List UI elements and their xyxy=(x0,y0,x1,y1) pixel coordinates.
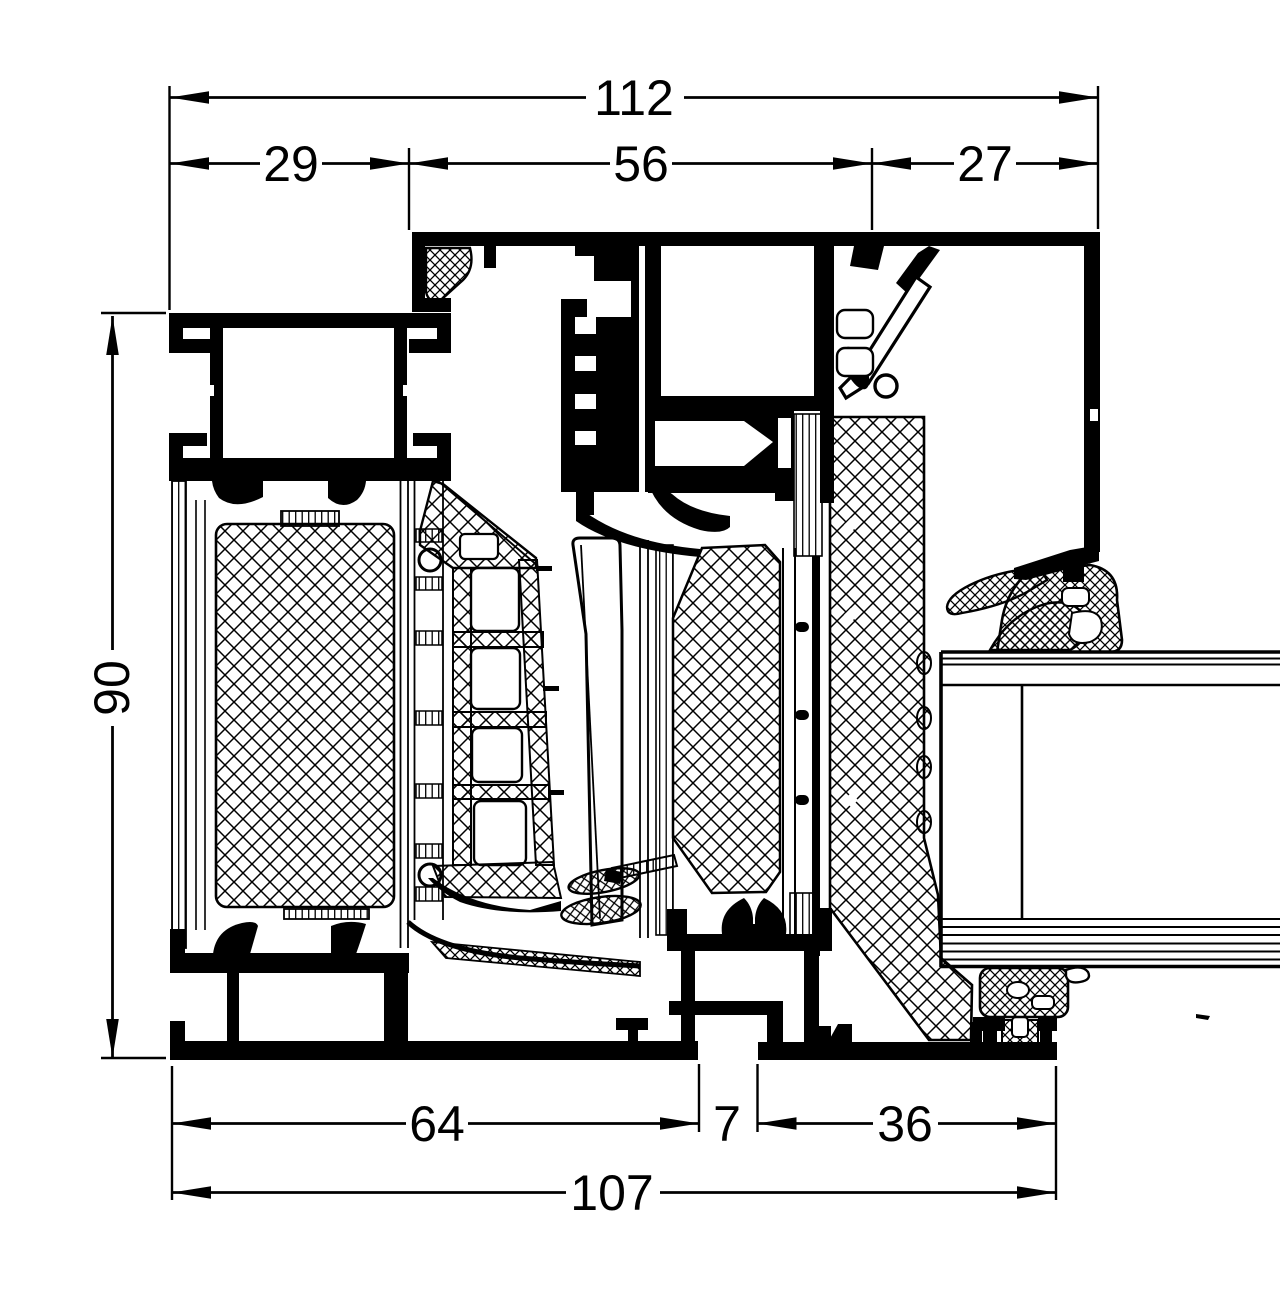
svg-text:112: 112 xyxy=(594,70,674,126)
svg-text:36: 36 xyxy=(877,1096,933,1152)
svg-text:64: 64 xyxy=(409,1096,465,1152)
svg-text:56: 56 xyxy=(613,136,669,192)
svg-text:107: 107 xyxy=(570,1165,653,1221)
svg-text:7: 7 xyxy=(713,1096,741,1152)
svg-text:29: 29 xyxy=(263,136,319,192)
svg-text:90: 90 xyxy=(84,660,140,716)
svg-text:27: 27 xyxy=(957,136,1013,192)
